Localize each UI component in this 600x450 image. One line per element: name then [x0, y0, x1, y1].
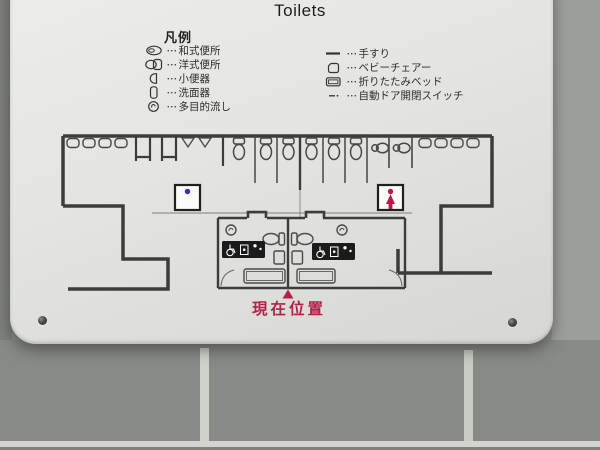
legend-item-multipurpose-sink: ･･･ 多目的流し [144, 100, 231, 114]
handrail-icon [324, 47, 344, 60]
legend-item-squat-toilet: ･･･ 和式便所 [144, 43, 231, 57]
legend-dots: ･･･ [166, 86, 177, 99]
legend-label: 洗面器 [179, 85, 211, 100]
legend-label: 洋式便所 [179, 57, 221, 72]
legend-dots: ･･･ [346, 47, 357, 60]
accessible-sign-right [312, 243, 355, 260]
legend-label: 自動ドア開閉スイッチ [359, 88, 464, 103]
wall-tile-right [552, 0, 600, 352]
womens-toilet-stalls [306, 136, 412, 183]
legend-item-auto-door-switch: ･･･ 自動ドア開閉スイッチ [324, 89, 464, 103]
multipurpose-sink-icon [144, 100, 164, 113]
legend-dots: ･･･ [166, 100, 177, 113]
legend-item-baby-chair: ･･･ ベビーチェアー [324, 60, 464, 74]
current-location-marker: 現在位置 [252, 290, 326, 319]
mens-toilet-stalls [234, 136, 295, 183]
multipurpose-sink-symbol [226, 225, 236, 235]
squat-toilet-icon [144, 44, 164, 57]
legend-dots: ･･･ [346, 75, 357, 88]
sign-title: Toilets [230, 1, 370, 21]
current-location-label: 現在位置 [252, 299, 326, 318]
mens-washbasins [67, 139, 127, 148]
legend-label: ベビーチェアー [359, 60, 432, 75]
legend-item-urinal: ･･･ 小便器 [144, 71, 231, 85]
baby-chair-icon [324, 61, 344, 74]
legend-label: 和式便所 [179, 43, 221, 58]
womens-washbasins [419, 139, 479, 148]
urinal-partitions [136, 136, 176, 161]
folding-bed-icon [324, 75, 344, 88]
floor-plan: 現在位置 [55, 128, 505, 320]
legend-left-column: ･･･ 和式便所 ･･･ 洋式便所 ･･･ 小便器 ･･･ 洗面器 ･･･ 多目… [144, 43, 231, 114]
auto-door-switch-icon [324, 89, 344, 102]
womens-area-sign [378, 185, 403, 210]
legend-right-column: ･･･ 手すり ･･･ ベビーチェアー ･･･ 折りたたみベッド ･･･ 自動ド… [324, 46, 464, 103]
urinal-icon [144, 72, 164, 85]
accessible-sign-left [222, 241, 265, 258]
multipurpose-sink-symbol [337, 225, 347, 235]
legend-item-handrail: ･･･ 手すり [324, 46, 464, 60]
tile-grout-vertical-1 [200, 348, 209, 444]
legend-label: 折りたたみベッド [359, 74, 443, 89]
mens-area-sign [175, 185, 200, 210]
legend-dots: ･･･ [166, 72, 177, 85]
legend-label: 手すり [359, 46, 391, 61]
legend-dots: ･･･ [346, 61, 357, 74]
legend-label: 小便器 [179, 71, 211, 86]
legend-dots: ･･･ [166, 58, 177, 71]
legend-item-washbasin: ･･･ 洗面器 [144, 86, 231, 100]
legend-dots: ･･･ [166, 44, 177, 57]
legend-item-folding-bed: ･･･ 折りたたみベッド [324, 74, 464, 88]
urinals [182, 138, 211, 147]
wall-tile-bottom [0, 340, 600, 450]
tile-grout-vertical-2 [464, 350, 473, 444]
legend-label: 多目的流し [179, 99, 232, 114]
screw-bottom-left [38, 316, 47, 325]
washbasin-icon [144, 86, 164, 99]
screw-bottom-right [508, 318, 517, 327]
western-toilet-icon [144, 58, 164, 71]
legend-dots: ･･･ [346, 89, 357, 102]
legend-item-western-toilet: ･･･ 洋式便所 [144, 57, 231, 71]
